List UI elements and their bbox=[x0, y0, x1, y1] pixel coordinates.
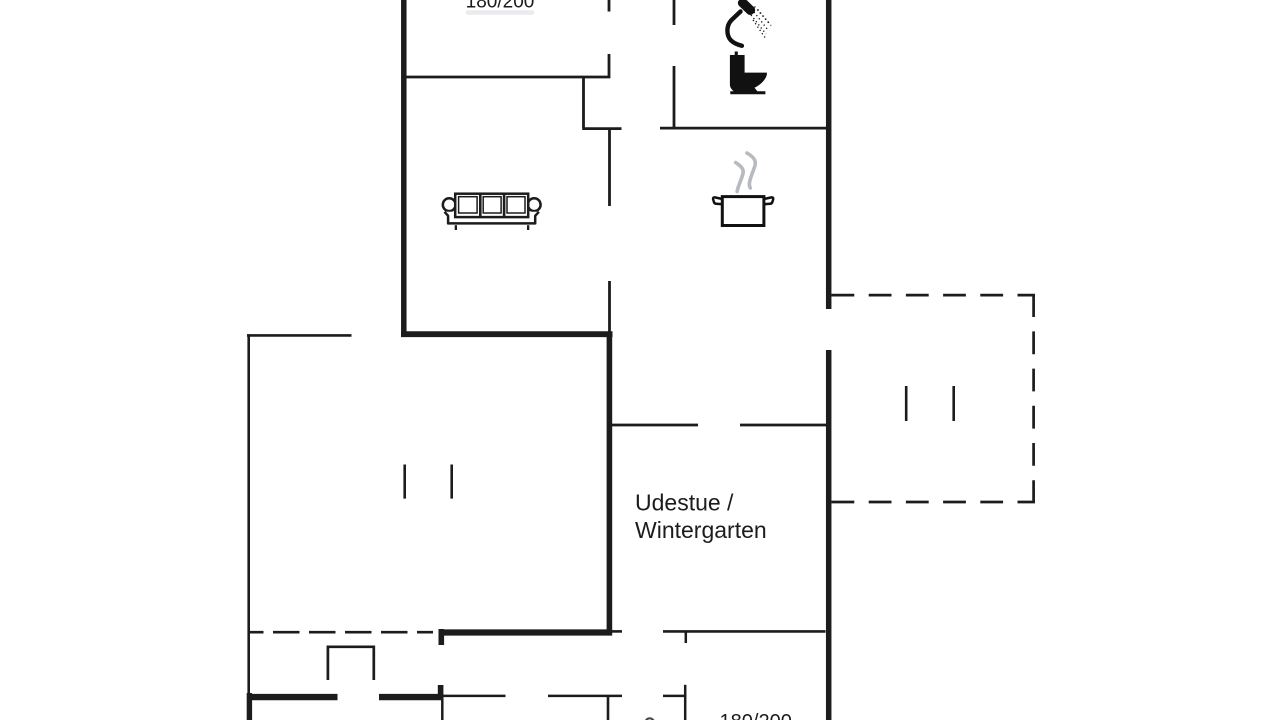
svg-text:180/200: 180/200 bbox=[720, 711, 792, 720]
svg-text:Wintergarten: Wintergarten bbox=[635, 517, 767, 543]
svg-text:Udestue /: Udestue / bbox=[635, 490, 734, 516]
